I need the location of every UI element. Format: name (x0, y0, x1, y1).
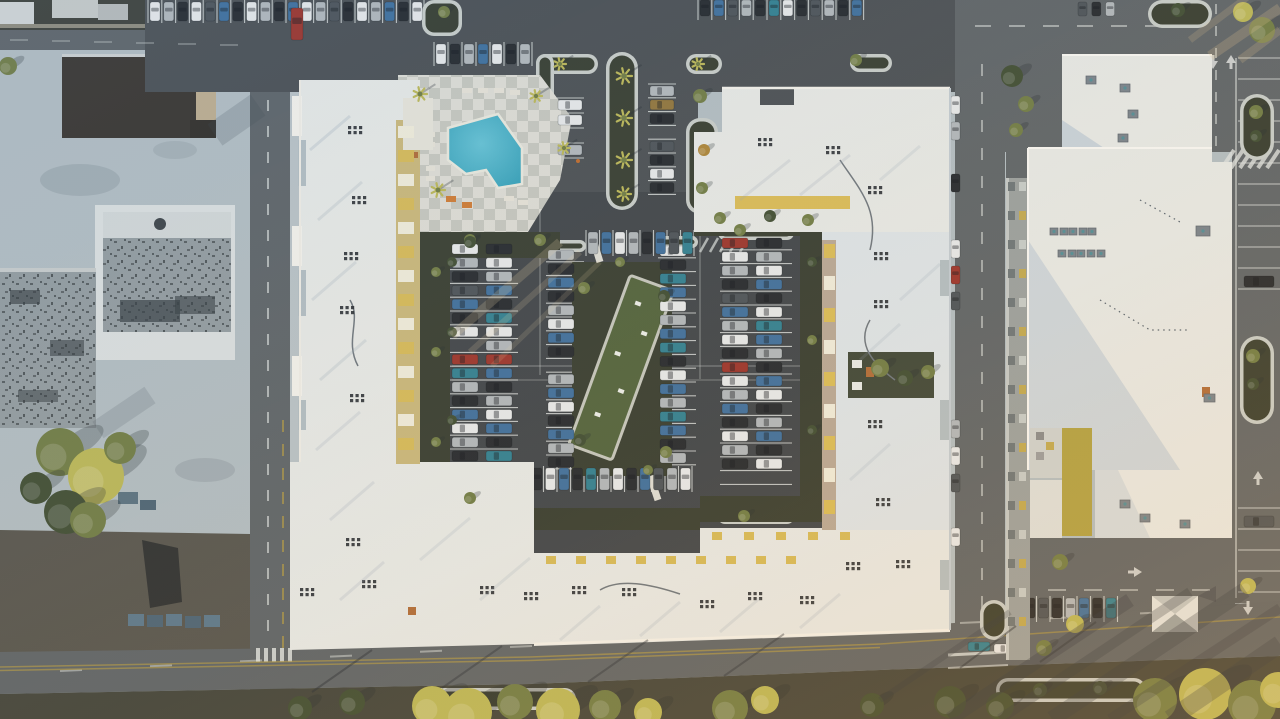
aerial-photo-apartment-complex: Aerial drone photograph, top-down view a… (0, 0, 1280, 719)
color-grade (0, 0, 1280, 719)
aerial-scene (0, 0, 1280, 719)
